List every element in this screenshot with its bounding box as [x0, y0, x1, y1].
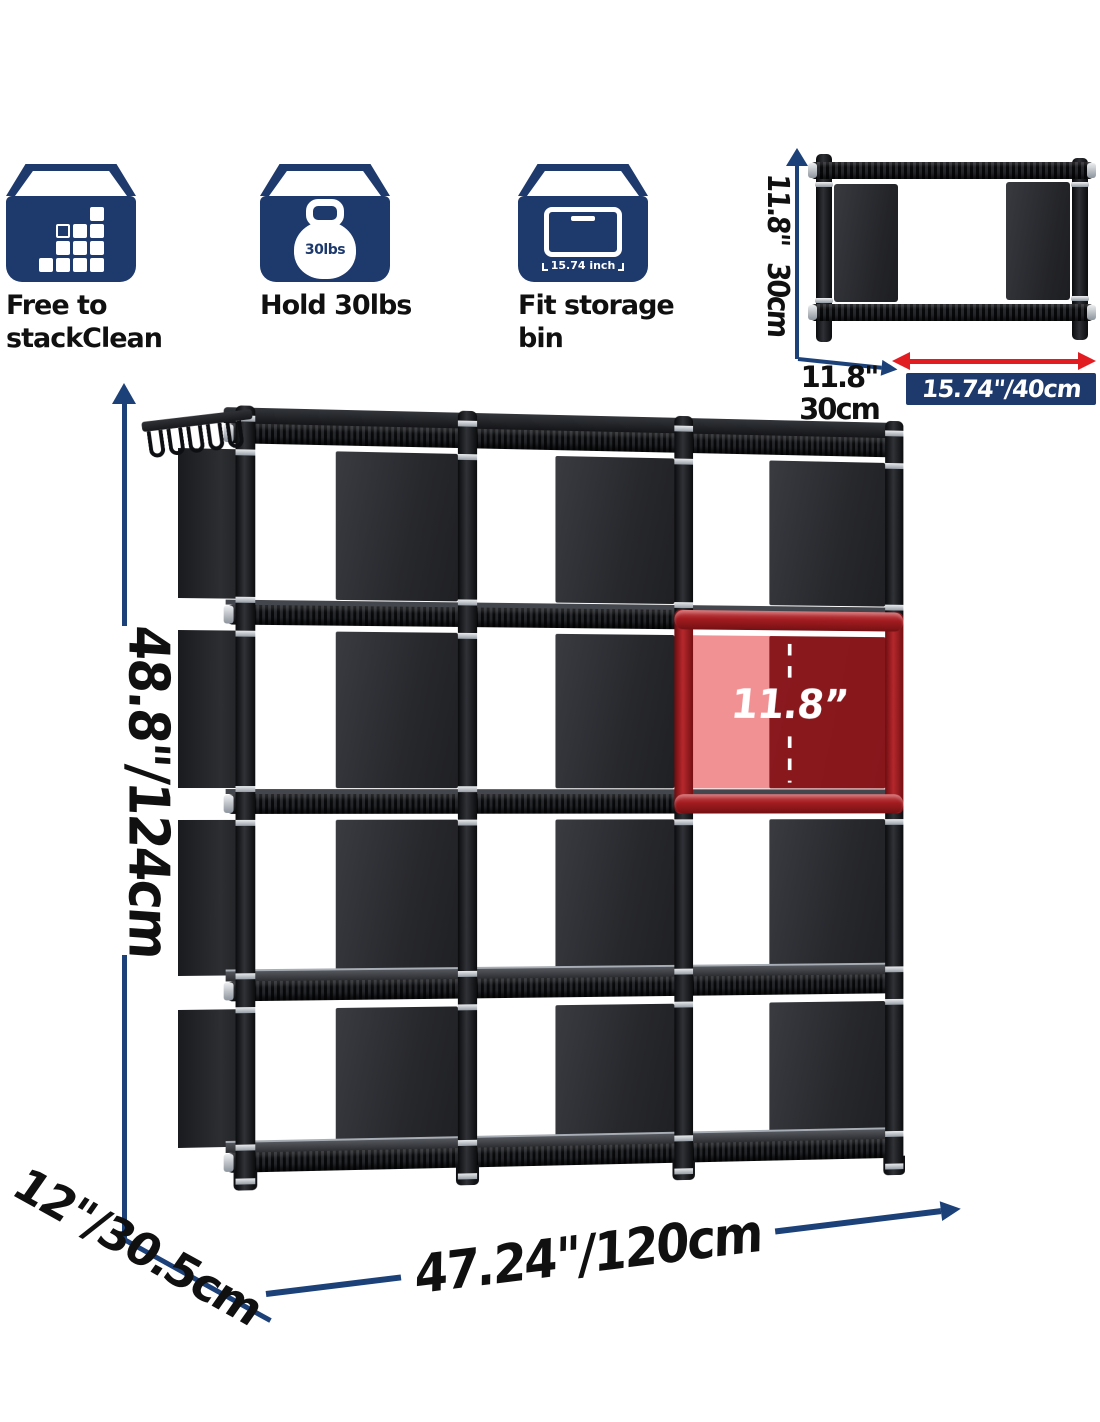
feature-label-line: Fit storage: [518, 290, 728, 323]
kettlebell-ball: 30lbs: [294, 221, 356, 279]
feature-label-line: stackClean: [6, 323, 216, 356]
divider-panel: [555, 634, 674, 788]
width-arrow-shaft-left: [266, 1274, 402, 1297]
side-panel: [178, 630, 239, 788]
feature-label-line: Free to: [6, 290, 216, 323]
width-label: 47.24"/120cm: [415, 1202, 763, 1307]
height-arrowhead: [112, 383, 136, 404]
width-arrow: 47.24"/120cm: [263, 1183, 964, 1320]
height-label: 48.8"/124cm: [123, 618, 181, 966]
bin-size-text: 15.74 inch: [551, 260, 616, 271]
cube-height-dash-line: [788, 736, 792, 782]
height-arrow-shaft-bottom: [122, 955, 127, 1239]
side-hooks: [140, 398, 271, 482]
icon-box-lid: [260, 164, 390, 196]
mini-height-label: 11.8" 30cm: [761, 166, 795, 344]
highlighted-top-bar: [674, 610, 903, 632]
feature-label-line: Hold 30lbs: [260, 290, 470, 323]
icon-box-body: 15.74 inch: [518, 196, 648, 282]
height-arrow-shaft-top: [122, 403, 127, 626]
cube-bottom-bar: [808, 304, 1096, 321]
s-hook-icon: [186, 425, 205, 454]
width-arrow-shaft-right: [775, 1208, 941, 1234]
feature-label: Hold 30lbs: [260, 290, 470, 323]
product-dimension-infographic: Free to stackClean 30lbs Hold 30lbs: [0, 0, 1100, 1422]
connector-ring: [1071, 296, 1089, 301]
cube-side-panel-left: [834, 184, 898, 302]
mini-width-arrowhead-right: [1078, 352, 1096, 370]
mini-width-badge: 15.74"/40cm: [906, 373, 1096, 405]
storage-bin-icon: 15.74 inch: [518, 164, 648, 282]
highlighted-post-segment: [885, 612, 903, 813]
cube-shelf-illustration: 11.8”: [178, 404, 905, 1194]
mini-width-arrow-shaft: [910, 359, 1078, 364]
s-hook-icon: [206, 423, 225, 452]
stack-cubes-icon: [6, 164, 136, 282]
feature-item-weight-capacity: 30lbs Hold 30lbs: [260, 164, 470, 323]
bin-size-caption: 15.74 inch: [542, 260, 625, 271]
mini-height-arrow-shaft: [795, 165, 799, 359]
divider-panel: [769, 1001, 885, 1136]
divider-panel: [555, 456, 674, 604]
side-panel: [178, 820, 239, 976]
feature-item-stackable: Free to stackClean: [6, 164, 216, 356]
mini-width-arrowhead-left: [892, 352, 910, 370]
measure-tick-right: [618, 263, 624, 271]
mini-width-arrow: [892, 352, 1096, 370]
mini-height-cm: 30cm: [761, 261, 795, 337]
stacked-cubes-glyph: [39, 207, 104, 272]
shelf-post: [236, 405, 256, 1190]
cube-side-panel-right: [1006, 182, 1070, 300]
highlighted-post-segment: [674, 610, 693, 814]
bin-outline: [544, 207, 622, 257]
bin-handle-slot: [571, 216, 595, 221]
cube-inner-height-label: 11.8”: [691, 680, 888, 728]
feature-label: Fit storage bin: [518, 290, 728, 356]
divider-panel: [336, 451, 458, 601]
single-cube-diagram: [806, 148, 1098, 354]
divider-panel: [555, 1004, 674, 1140]
measure-tick-left: [542, 263, 548, 271]
s-hook-icon: [147, 430, 167, 459]
icon-box-body: [6, 196, 136, 282]
divider-panel: [769, 460, 885, 606]
s-hook-icon: [225, 420, 244, 449]
mini-height-inches: 11.8": [761, 173, 795, 246]
mini-height-arrowhead: [786, 148, 808, 166]
s-hook-icon: [166, 427, 186, 456]
width-arrowhead: [940, 1199, 962, 1221]
cube-height-dash-line: [788, 644, 792, 683]
highlighted-bottom-bar: [674, 794, 903, 813]
divider-panel: [555, 819, 674, 972]
shelf-post: [458, 411, 477, 1186]
feature-item-fits-bins: 15.74 inch Fit storage bin: [518, 164, 728, 356]
connector-ring: [1071, 182, 1089, 187]
cube-top-bar: [808, 162, 1096, 179]
divider-panel: [336, 632, 458, 789]
feature-label: Free to stackClean: [6, 290, 216, 356]
divider-panel: [769, 819, 885, 970]
mini-depth-inches: 11.8": [786, 362, 892, 394]
mini-width-label: 15.74"/40cm: [920, 375, 1082, 403]
kettlebell-glyph: 30lbs: [294, 199, 356, 279]
feature-label-line: bin: [518, 323, 728, 356]
kettlebell-icon: 30lbs: [260, 164, 390, 282]
mini-depth-label: 11.8" 30cm: [786, 362, 892, 426]
divider-panel: [336, 1006, 458, 1144]
side-panel: [178, 1009, 239, 1148]
storage-bin-glyph: 15.74 inch: [542, 207, 625, 271]
icon-box-lid: [6, 164, 136, 196]
icon-box-lid: [518, 164, 648, 196]
connector-ring: [815, 182, 833, 187]
connector-ring: [815, 298, 833, 303]
kettlebell-weight-text: 30lbs: [305, 242, 345, 258]
icon-box-body: 30lbs: [260, 196, 390, 282]
divider-panel: [336, 820, 458, 975]
